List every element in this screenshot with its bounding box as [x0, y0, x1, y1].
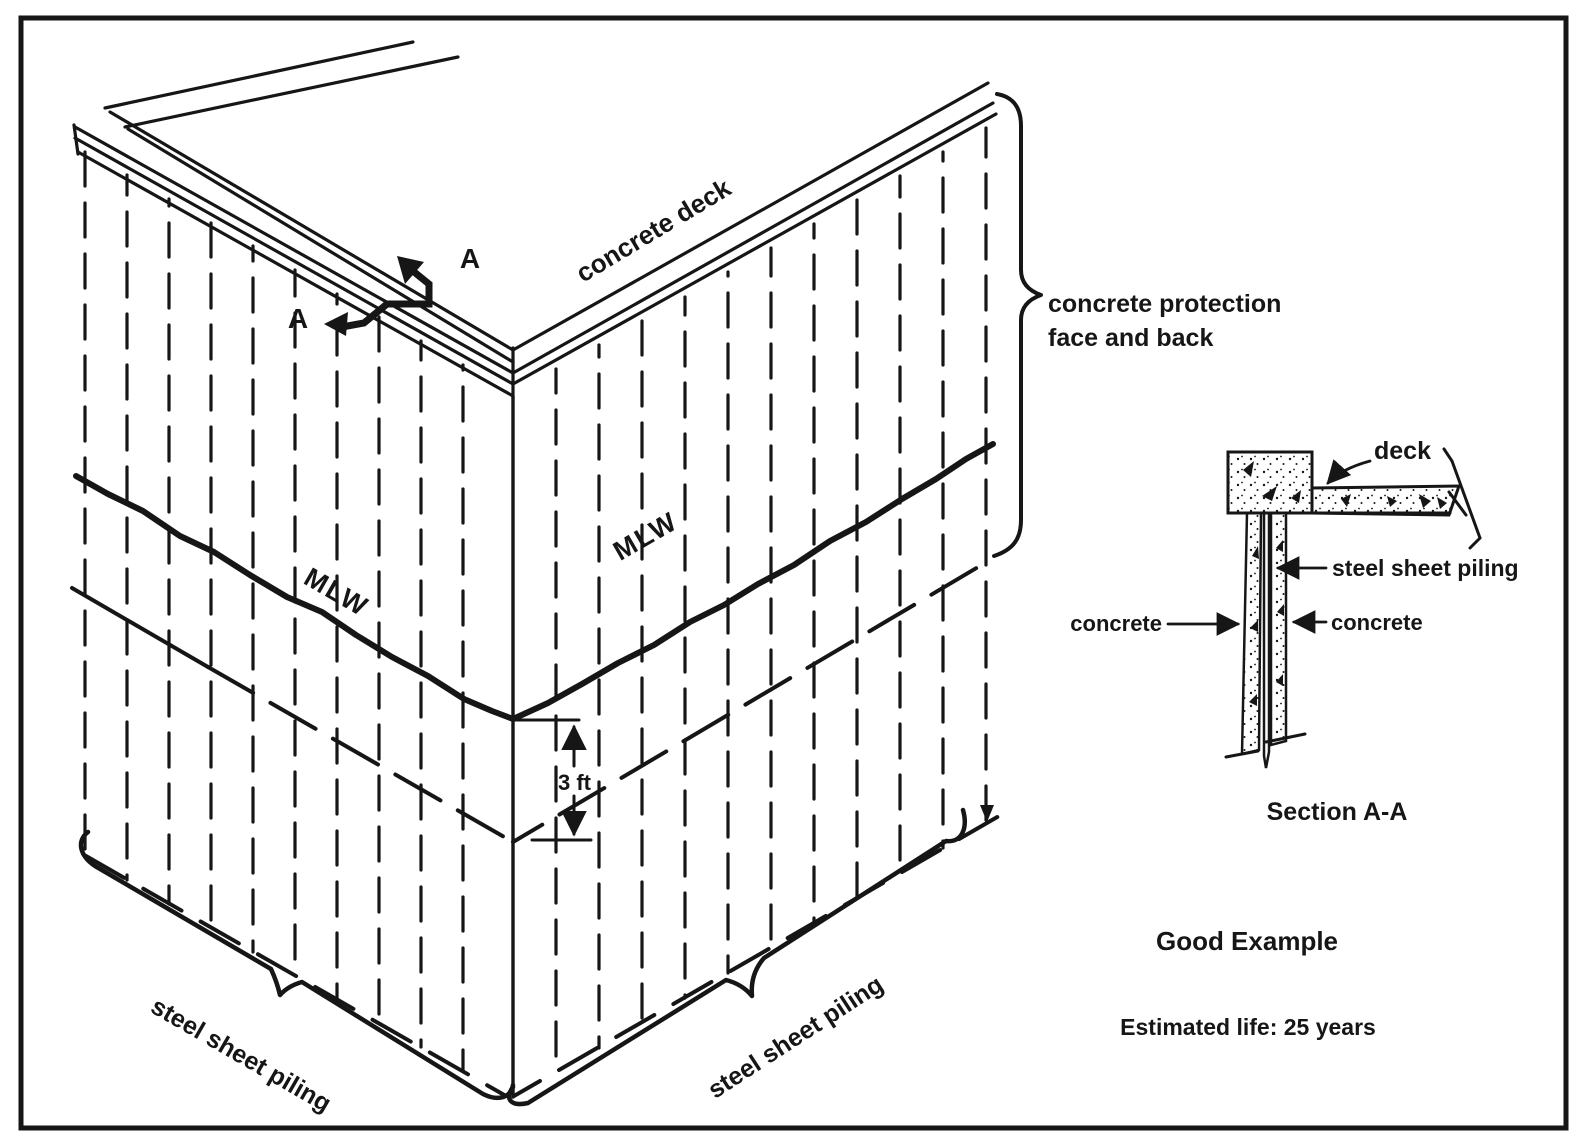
brace-concrete-protection — [994, 94, 1041, 556]
brace-piling-left — [81, 832, 513, 1098]
braces — [81, 94, 1041, 1104]
verdict-label: Good Example — [1156, 926, 1338, 956]
protection-note-line2: face and back — [1048, 324, 1213, 352]
section-marker-a-bottom: A — [288, 303, 308, 334]
section-piling-label: steel sheet piling — [1332, 555, 1519, 581]
bulkhead-diagram: concrete deck A A MLW MLW 3 ft concrete … — [0, 0, 1586, 1146]
piling-label-right: steel sheet piling — [703, 970, 888, 1104]
perspective-drawing — [72, 42, 1041, 1104]
section-caption: Section A-A — [1267, 798, 1408, 826]
deck-leader-arrow — [1328, 461, 1370, 483]
piling-label-left: steel sheet piling — [146, 992, 336, 1118]
section-concrete-label-left: concrete — [1070, 611, 1162, 636]
section-deck-label: deck — [1374, 437, 1431, 465]
section-cap-block — [1228, 452, 1312, 513]
dimension-3ft-label: 3 ft — [558, 770, 592, 795]
pile-joints-right-face — [556, 128, 986, 1073]
mlw-label-right: MLW — [608, 506, 683, 566]
mlw-label-left: MLW — [299, 562, 374, 622]
figure-page: concrete deck A A MLW MLW 3 ft concrete … — [0, 0, 1586, 1146]
section-deck-slab — [1312, 486, 1459, 515]
section-aa-detail — [1168, 449, 1480, 768]
section-marker-a-top: A — [460, 243, 480, 274]
section-steel-sheet — [1264, 513, 1269, 768]
protection-note-line1: concrete protection — [1048, 290, 1281, 318]
pile-joints-left-face — [85, 152, 463, 1071]
deck-cap-right-face — [513, 83, 996, 398]
estimated-life-label: Estimated life: 25 years — [1120, 1014, 1376, 1040]
section-concrete-label-right: concrete — [1331, 610, 1423, 635]
